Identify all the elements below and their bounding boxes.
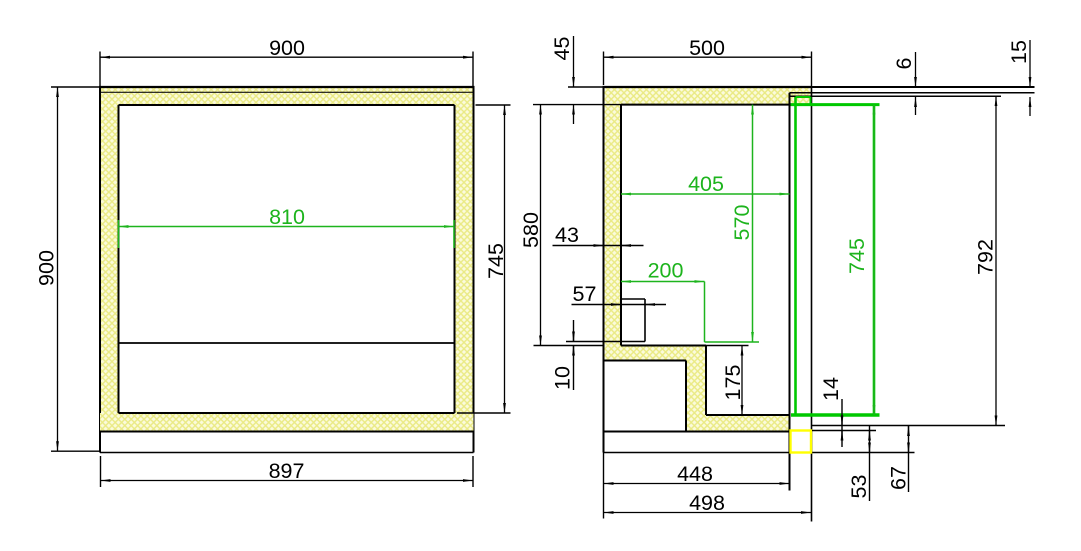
svg-text:900: 900 xyxy=(269,36,305,60)
svg-text:6: 6 xyxy=(892,57,916,69)
svg-text:15: 15 xyxy=(1007,40,1031,64)
svg-text:57: 57 xyxy=(573,282,597,306)
svg-text:900: 900 xyxy=(35,250,59,286)
svg-text:175: 175 xyxy=(721,365,745,401)
svg-text:498: 498 xyxy=(689,491,725,515)
svg-text:745: 745 xyxy=(484,243,508,279)
svg-text:67: 67 xyxy=(887,466,911,490)
svg-text:792: 792 xyxy=(974,239,998,275)
svg-text:10: 10 xyxy=(551,366,575,390)
svg-text:14: 14 xyxy=(819,377,843,401)
svg-text:43: 43 xyxy=(555,223,579,247)
svg-text:580: 580 xyxy=(519,212,543,248)
svg-text:570: 570 xyxy=(730,205,754,241)
svg-text:45: 45 xyxy=(550,37,574,61)
svg-text:810: 810 xyxy=(269,205,305,229)
svg-text:405: 405 xyxy=(688,172,724,196)
svg-text:897: 897 xyxy=(269,459,305,483)
svg-text:200: 200 xyxy=(648,259,684,283)
svg-text:745: 745 xyxy=(845,238,869,274)
svg-text:448: 448 xyxy=(677,462,713,486)
svg-text:53: 53 xyxy=(847,475,871,499)
svg-text:500: 500 xyxy=(689,36,725,60)
